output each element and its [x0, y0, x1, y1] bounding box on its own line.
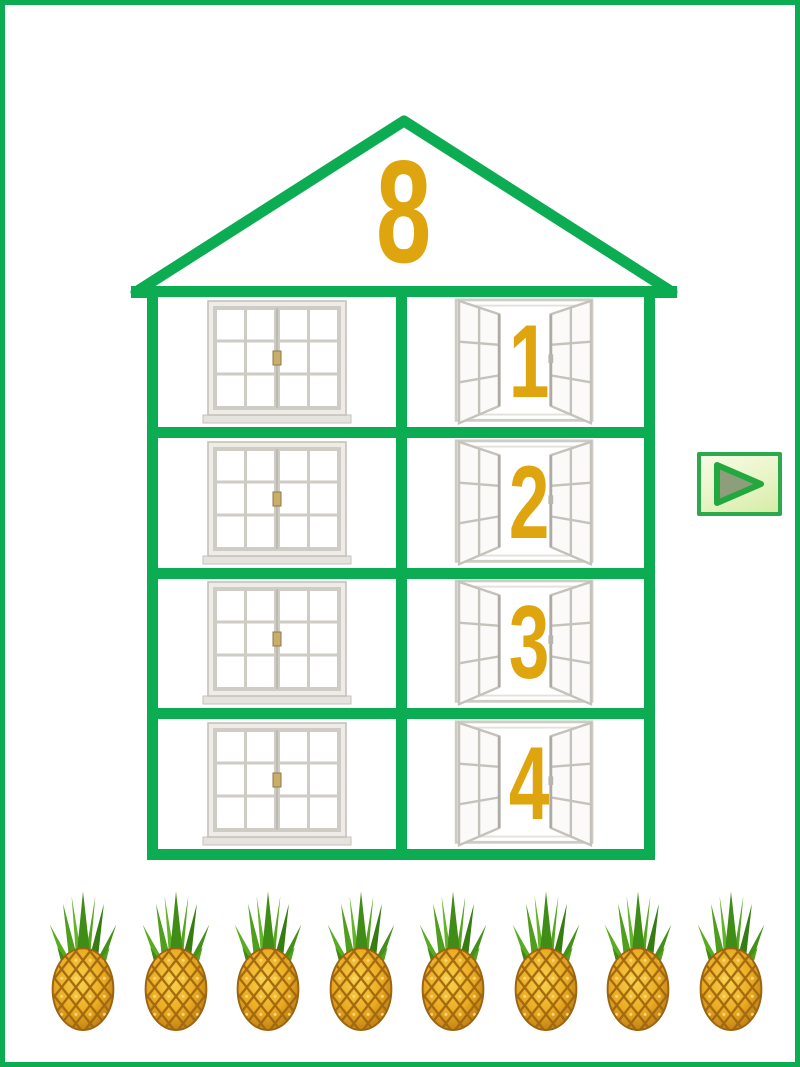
open-window-cell[interactable]: 1 — [407, 297, 645, 427]
next-button[interactable] — [697, 452, 782, 516]
open-window-icon — [439, 579, 611, 709]
pineapple-icon — [224, 879, 312, 1031]
pineapple-icon — [409, 879, 497, 1031]
pineapple-icon — [317, 879, 405, 1031]
pineapple-icon — [39, 879, 127, 1031]
closed-window-cell[interactable] — [158, 438, 396, 568]
closed-window-cell[interactable] — [158, 719, 396, 849]
closed-window-icon — [201, 299, 353, 425]
open-window-cell[interactable]: 4 — [407, 719, 645, 849]
open-window-cell[interactable]: 3 — [407, 579, 645, 709]
number-house-slide: 8 — [0, 0, 800, 1067]
play-triangle-icon — [709, 460, 771, 508]
closed-window-cell[interactable] — [158, 579, 396, 709]
open-window-cell[interactable]: 2 — [407, 438, 645, 568]
house-grid: 1 — [147, 286, 655, 860]
pineapple-icon — [502, 879, 590, 1031]
open-window-icon — [439, 719, 611, 849]
closed-window-cell[interactable] — [158, 297, 396, 427]
pineapple-icon — [132, 879, 220, 1031]
roof-number: 8 — [376, 139, 431, 285]
pineapple-row — [39, 875, 775, 1031]
pineapple-icon — [687, 879, 775, 1031]
pineapple-icon — [594, 879, 682, 1031]
open-window-icon — [439, 438, 611, 568]
closed-window-icon — [201, 580, 353, 706]
closed-window-icon — [201, 440, 353, 566]
closed-window-icon — [201, 721, 353, 847]
open-window-icon — [439, 297, 611, 427]
roof-number-area: 8 — [324, 147, 484, 277]
